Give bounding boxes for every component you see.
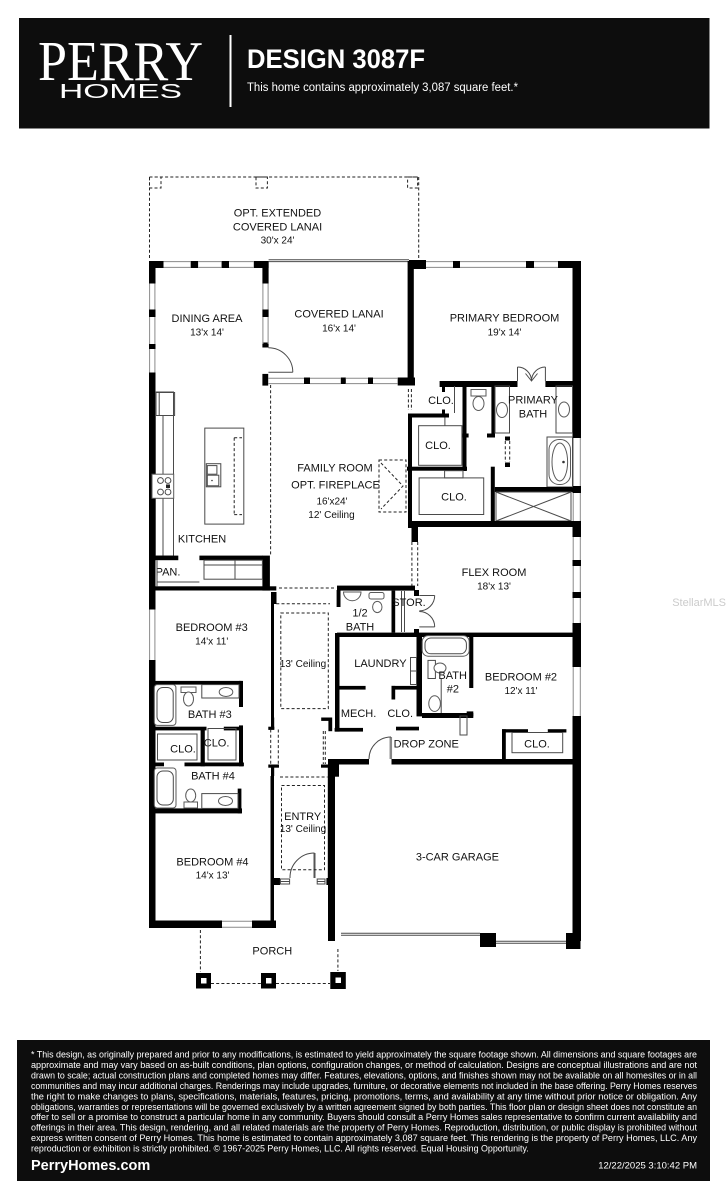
svg-text:COVERED LANAI: COVERED LANAI xyxy=(233,222,322,234)
svg-text:BATH #3: BATH #3 xyxy=(188,709,232,721)
svg-text:This home contains approximate: This home contains approximately 3,087 s… xyxy=(247,82,519,94)
svg-text:ENTRY: ENTRY xyxy=(284,811,322,823)
svg-text:FLEX ROOM: FLEX ROOM xyxy=(462,567,527,579)
svg-text:approximate and may vary base: approximate and may vary based on as-bui… xyxy=(31,1060,698,1070)
svg-text:BATH: BATH xyxy=(346,622,375,634)
svg-text:COVERED LANAI: COVERED LANAI xyxy=(294,309,383,321)
svg-text:CLO.: CLO. xyxy=(524,739,550,751)
svg-text:#2: #2 xyxy=(447,684,459,696)
svg-text:OPT. FIREPLACE: OPT. FIREPLACE xyxy=(291,480,380,492)
svg-text:CLO.: CLO. xyxy=(170,744,196,756)
svg-text:communities and may incur addi: communities and may incur additional cha… xyxy=(31,1081,698,1091)
svg-text:BEDROOM #2: BEDROOM #2 xyxy=(485,672,557,684)
svg-text:drawn to scale; actual constru: drawn to scale; actual construction plan… xyxy=(31,1070,697,1080)
svg-text:1/2: 1/2 xyxy=(352,608,367,620)
svg-text:13'x 14': 13'x 14' xyxy=(190,328,224,339)
svg-text:CLO.: CLO. xyxy=(387,708,413,720)
svg-text:13' Ceiling: 13' Ceiling xyxy=(280,659,326,670)
svg-text:offer to sell or a promise to: offer to sell or a promise to construct … xyxy=(31,1112,697,1122)
svg-text:PORCH: PORCH xyxy=(252,946,292,958)
svg-text:reproduction or exhibition is: reproduction or exhibition is strictly p… xyxy=(31,1144,529,1154)
svg-text:the right to make changes to: the right to make changes to plans, spec… xyxy=(31,1091,698,1101)
svg-text:DINING AREA: DINING AREA xyxy=(172,313,244,325)
svg-text:FAMILY ROOM: FAMILY ROOM xyxy=(297,463,372,475)
svg-text:LAUNDRY: LAUNDRY xyxy=(354,658,407,670)
svg-text:HOMES: HOMES xyxy=(59,81,182,103)
svg-text:PerryHomes.com: PerryHomes.com xyxy=(31,1158,150,1174)
svg-text:CLO.: CLO. xyxy=(428,395,454,407)
svg-text:12' Ceiling: 12' Ceiling xyxy=(308,510,354,521)
svg-text:PAN.: PAN. xyxy=(156,567,181,579)
svg-text:CLO.: CLO. xyxy=(441,492,467,504)
svg-text:KITCHEN: KITCHEN xyxy=(178,534,226,546)
svg-text:16'x24': 16'x24' xyxy=(316,497,347,508)
svg-text:BATH: BATH xyxy=(519,409,548,421)
svg-text:13' Ceiling: 13' Ceiling xyxy=(280,824,326,835)
svg-text:18'x 13': 18'x 13' xyxy=(477,582,511,593)
svg-text:14'x 13': 14'x 13' xyxy=(196,871,230,882)
svg-text:12/22/2025 3:10:42 PM: 12/22/2025 3:10:42 PM xyxy=(598,1161,697,1172)
svg-text:3-CAR GARAGE: 3-CAR GARAGE xyxy=(416,852,499,864)
svg-text:19'x 14': 19'x 14' xyxy=(488,328,522,339)
svg-text:DROP ZONE: DROP ZONE xyxy=(394,739,459,751)
svg-text:BEDROOM #3: BEDROOM #3 xyxy=(176,622,248,634)
svg-text:offerings in their area. This: offerings in their area. This design, re… xyxy=(31,1123,698,1133)
svg-text:StellarMLS: StellarMLS xyxy=(672,597,726,609)
svg-text:DESIGN 3087F: DESIGN 3087F xyxy=(247,44,425,74)
svg-text:* This design, as originally p: * This design, as originally prepared an… xyxy=(31,1050,697,1060)
svg-text:CLO.: CLO. xyxy=(425,440,451,452)
svg-text:PRIMARY BEDROOM: PRIMARY BEDROOM xyxy=(450,313,560,325)
svg-text:BEDROOM #4: BEDROOM #4 xyxy=(176,857,248,869)
svg-text:STOR.: STOR. xyxy=(392,597,425,609)
svg-text:MECH.: MECH. xyxy=(341,708,376,720)
svg-text:obligations, warranties or rep: obligations, warranties or representatio… xyxy=(31,1102,697,1112)
svg-text:PRIMARY: PRIMARY xyxy=(508,395,559,407)
svg-text:16'x 14': 16'x 14' xyxy=(322,324,356,335)
svg-text:30'x 24': 30'x 24' xyxy=(261,236,295,247)
svg-text:12'x 11': 12'x 11' xyxy=(504,686,537,697)
svg-text:OPT. EXTENDED: OPT. EXTENDED xyxy=(234,208,321,220)
svg-text:14'x 11': 14'x 11' xyxy=(195,637,228,648)
svg-text:express written consent of P: express written consent of Perry Homes. … xyxy=(31,1133,698,1143)
svg-text:BATH #4: BATH #4 xyxy=(191,771,235,783)
svg-text:BATH: BATH xyxy=(438,670,467,682)
